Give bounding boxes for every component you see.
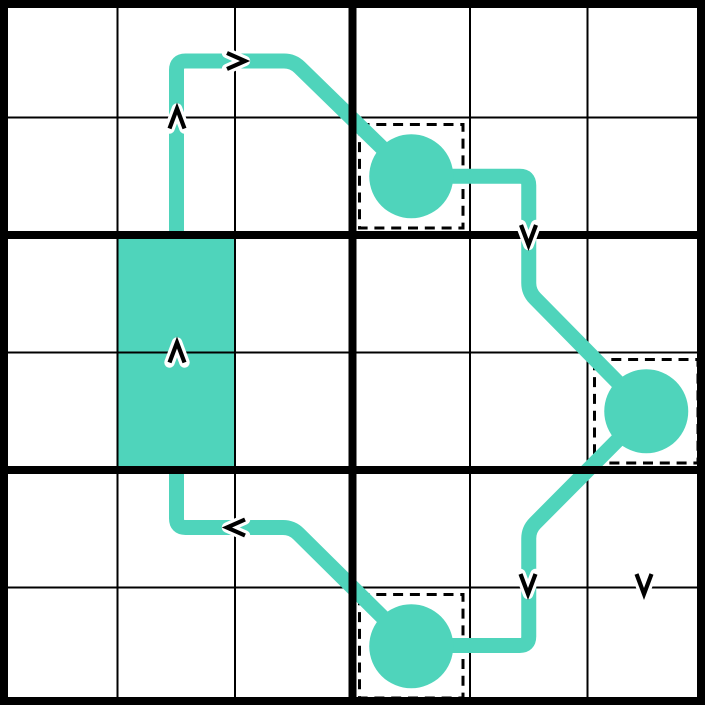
thermo-bulb[interactable] bbox=[369, 134, 453, 218]
thermo-fill-cell[interactable] bbox=[118, 353, 236, 471]
board-svg[interactable] bbox=[0, 0, 705, 705]
puzzle-board[interactable] bbox=[0, 0, 705, 705]
thermo-bulb[interactable] bbox=[369, 604, 453, 688]
thermo-fill-cell[interactable] bbox=[118, 235, 236, 353]
thermo-bulb[interactable] bbox=[604, 369, 688, 453]
